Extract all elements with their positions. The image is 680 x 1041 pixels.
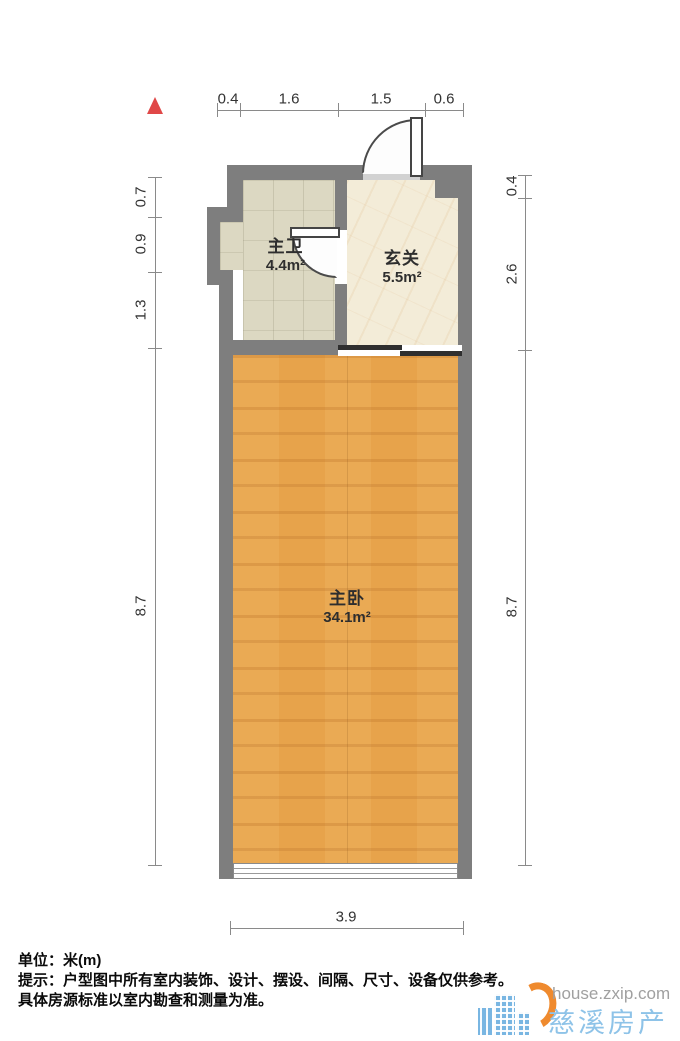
dim-label: 2.6 — [504, 264, 521, 285]
dim-line — [525, 175, 526, 865]
dim-tick — [338, 103, 339, 117]
wall-top — [227, 165, 472, 180]
sliding-door-panel-left — [338, 345, 402, 350]
disclaimer-line2: 具体房源标准以室内勘查和测量为准。 — [18, 991, 513, 1011]
dim-label: 8.7 — [133, 596, 150, 617]
room-label-bedroom: 主卧 34.1m² — [287, 589, 407, 627]
footer-notes: 单位：米(m) 提示：户型图中所有室内装饰、设计、摆设、间隔、尺寸、设备仅供参考… — [18, 951, 513, 1011]
room-name: 玄关 — [352, 249, 452, 269]
dim-line — [217, 110, 463, 111]
dim-tick — [148, 177, 162, 178]
unit-note: 单位：米(m) — [18, 951, 513, 971]
wall-left-step-top — [207, 207, 243, 222]
watermark-site-name: 慈溪房产网 — [548, 1001, 680, 1041]
room-area: 5.5m² — [352, 269, 452, 287]
dim-label: 1.3 — [133, 300, 150, 321]
room-area: 34.1m² — [287, 609, 407, 627]
city-buildings-icon — [494, 994, 515, 1035]
dim-tick — [148, 217, 162, 218]
city-buildings-icon — [478, 1008, 492, 1035]
wall-left-step-bottom — [207, 270, 233, 285]
dim-tick — [148, 272, 162, 273]
dim-tick — [425, 103, 426, 117]
dim-label: 0.4 — [218, 91, 239, 108]
dim-label: 8.7 — [504, 597, 521, 618]
dim-label: 0.9 — [133, 234, 150, 255]
room-label-bathroom: 主卫 4.4m² — [238, 237, 333, 275]
dim-label: 0.4 — [504, 176, 521, 197]
dim-tick — [230, 921, 231, 935]
city-buildings-icon — [517, 1012, 529, 1035]
north-arrow-icon — [147, 97, 163, 114]
room-label-hallway: 玄关 5.5m² — [352, 249, 452, 287]
dim-tick — [463, 921, 464, 935]
dim-tick — [518, 350, 532, 351]
dim-label: 1.5 — [371, 91, 392, 108]
sliding-door-panel-right — [400, 351, 462, 356]
dim-tick — [463, 103, 464, 117]
dim-label: 3.9 — [336, 909, 357, 926]
wall-bathroom-bottom — [219, 340, 345, 355]
wall-left-lower — [219, 285, 233, 879]
dim-tick — [518, 865, 532, 866]
dim-tick — [518, 198, 532, 199]
dim-line — [155, 177, 156, 865]
entry-door-leaf — [410, 117, 423, 177]
entry-door-arc — [362, 119, 417, 174]
floorplan-canvas: 主卫 4.4m² 玄关 5.5m² 主卧 34.1m² 0.4 1.6 1.5 … — [0, 0, 680, 1041]
dim-tick — [240, 103, 241, 117]
dim-tick — [148, 348, 162, 349]
room-name: 主卧 — [287, 589, 407, 609]
room-name: 主卫 — [238, 237, 333, 257]
bedroom-window — [233, 863, 458, 879]
dim-line — [230, 928, 463, 929]
wall-right — [458, 180, 472, 879]
room-area: 4.4m² — [238, 257, 333, 275]
disclaimer-line1: 提示：户型图中所有室内装饰、设计、摆设、间隔、尺寸、设备仅供参考。 — [18, 971, 513, 991]
dim-label: 0.6 — [434, 91, 455, 108]
dim-tick — [148, 865, 162, 866]
dim-label: 0.7 — [133, 187, 150, 208]
dim-label: 1.6 — [279, 91, 300, 108]
